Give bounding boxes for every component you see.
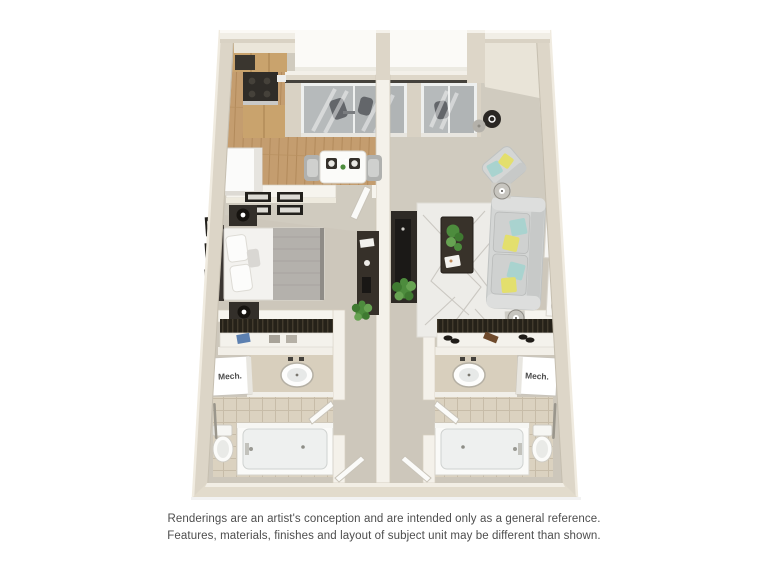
dining-set <box>304 151 382 183</box>
mech-label-left: Mech. <box>218 370 242 381</box>
floor-plan-rendering: Mech. <box>185 15 585 500</box>
disclaimer-line-2: Features, materials, finishes and layout… <box>0 528 768 545</box>
refrigerator <box>222 148 262 195</box>
sofa <box>486 196 546 311</box>
floor-plan-svg: Mech. <box>185 15 585 500</box>
mech-closet-left: Mech. <box>210 356 253 396</box>
toilet <box>532 425 552 462</box>
coffee-table <box>441 217 473 273</box>
disclaimer-line-1: Renderings are an artist's conception an… <box>0 511 768 528</box>
closet-clothes <box>220 319 333 333</box>
page: Mech. <box>0 0 768 576</box>
stove <box>243 72 278 105</box>
mech-closet-right: Mech. <box>516 356 558 396</box>
range-hood <box>235 55 255 70</box>
disclaimer: Renderings are an artist's conception an… <box>0 511 768 545</box>
closet-clothes <box>437 319 555 333</box>
bathtub <box>237 423 333 475</box>
mech-label-right: Mech. <box>525 370 549 381</box>
bed <box>208 225 324 301</box>
bathtub <box>435 423 529 475</box>
